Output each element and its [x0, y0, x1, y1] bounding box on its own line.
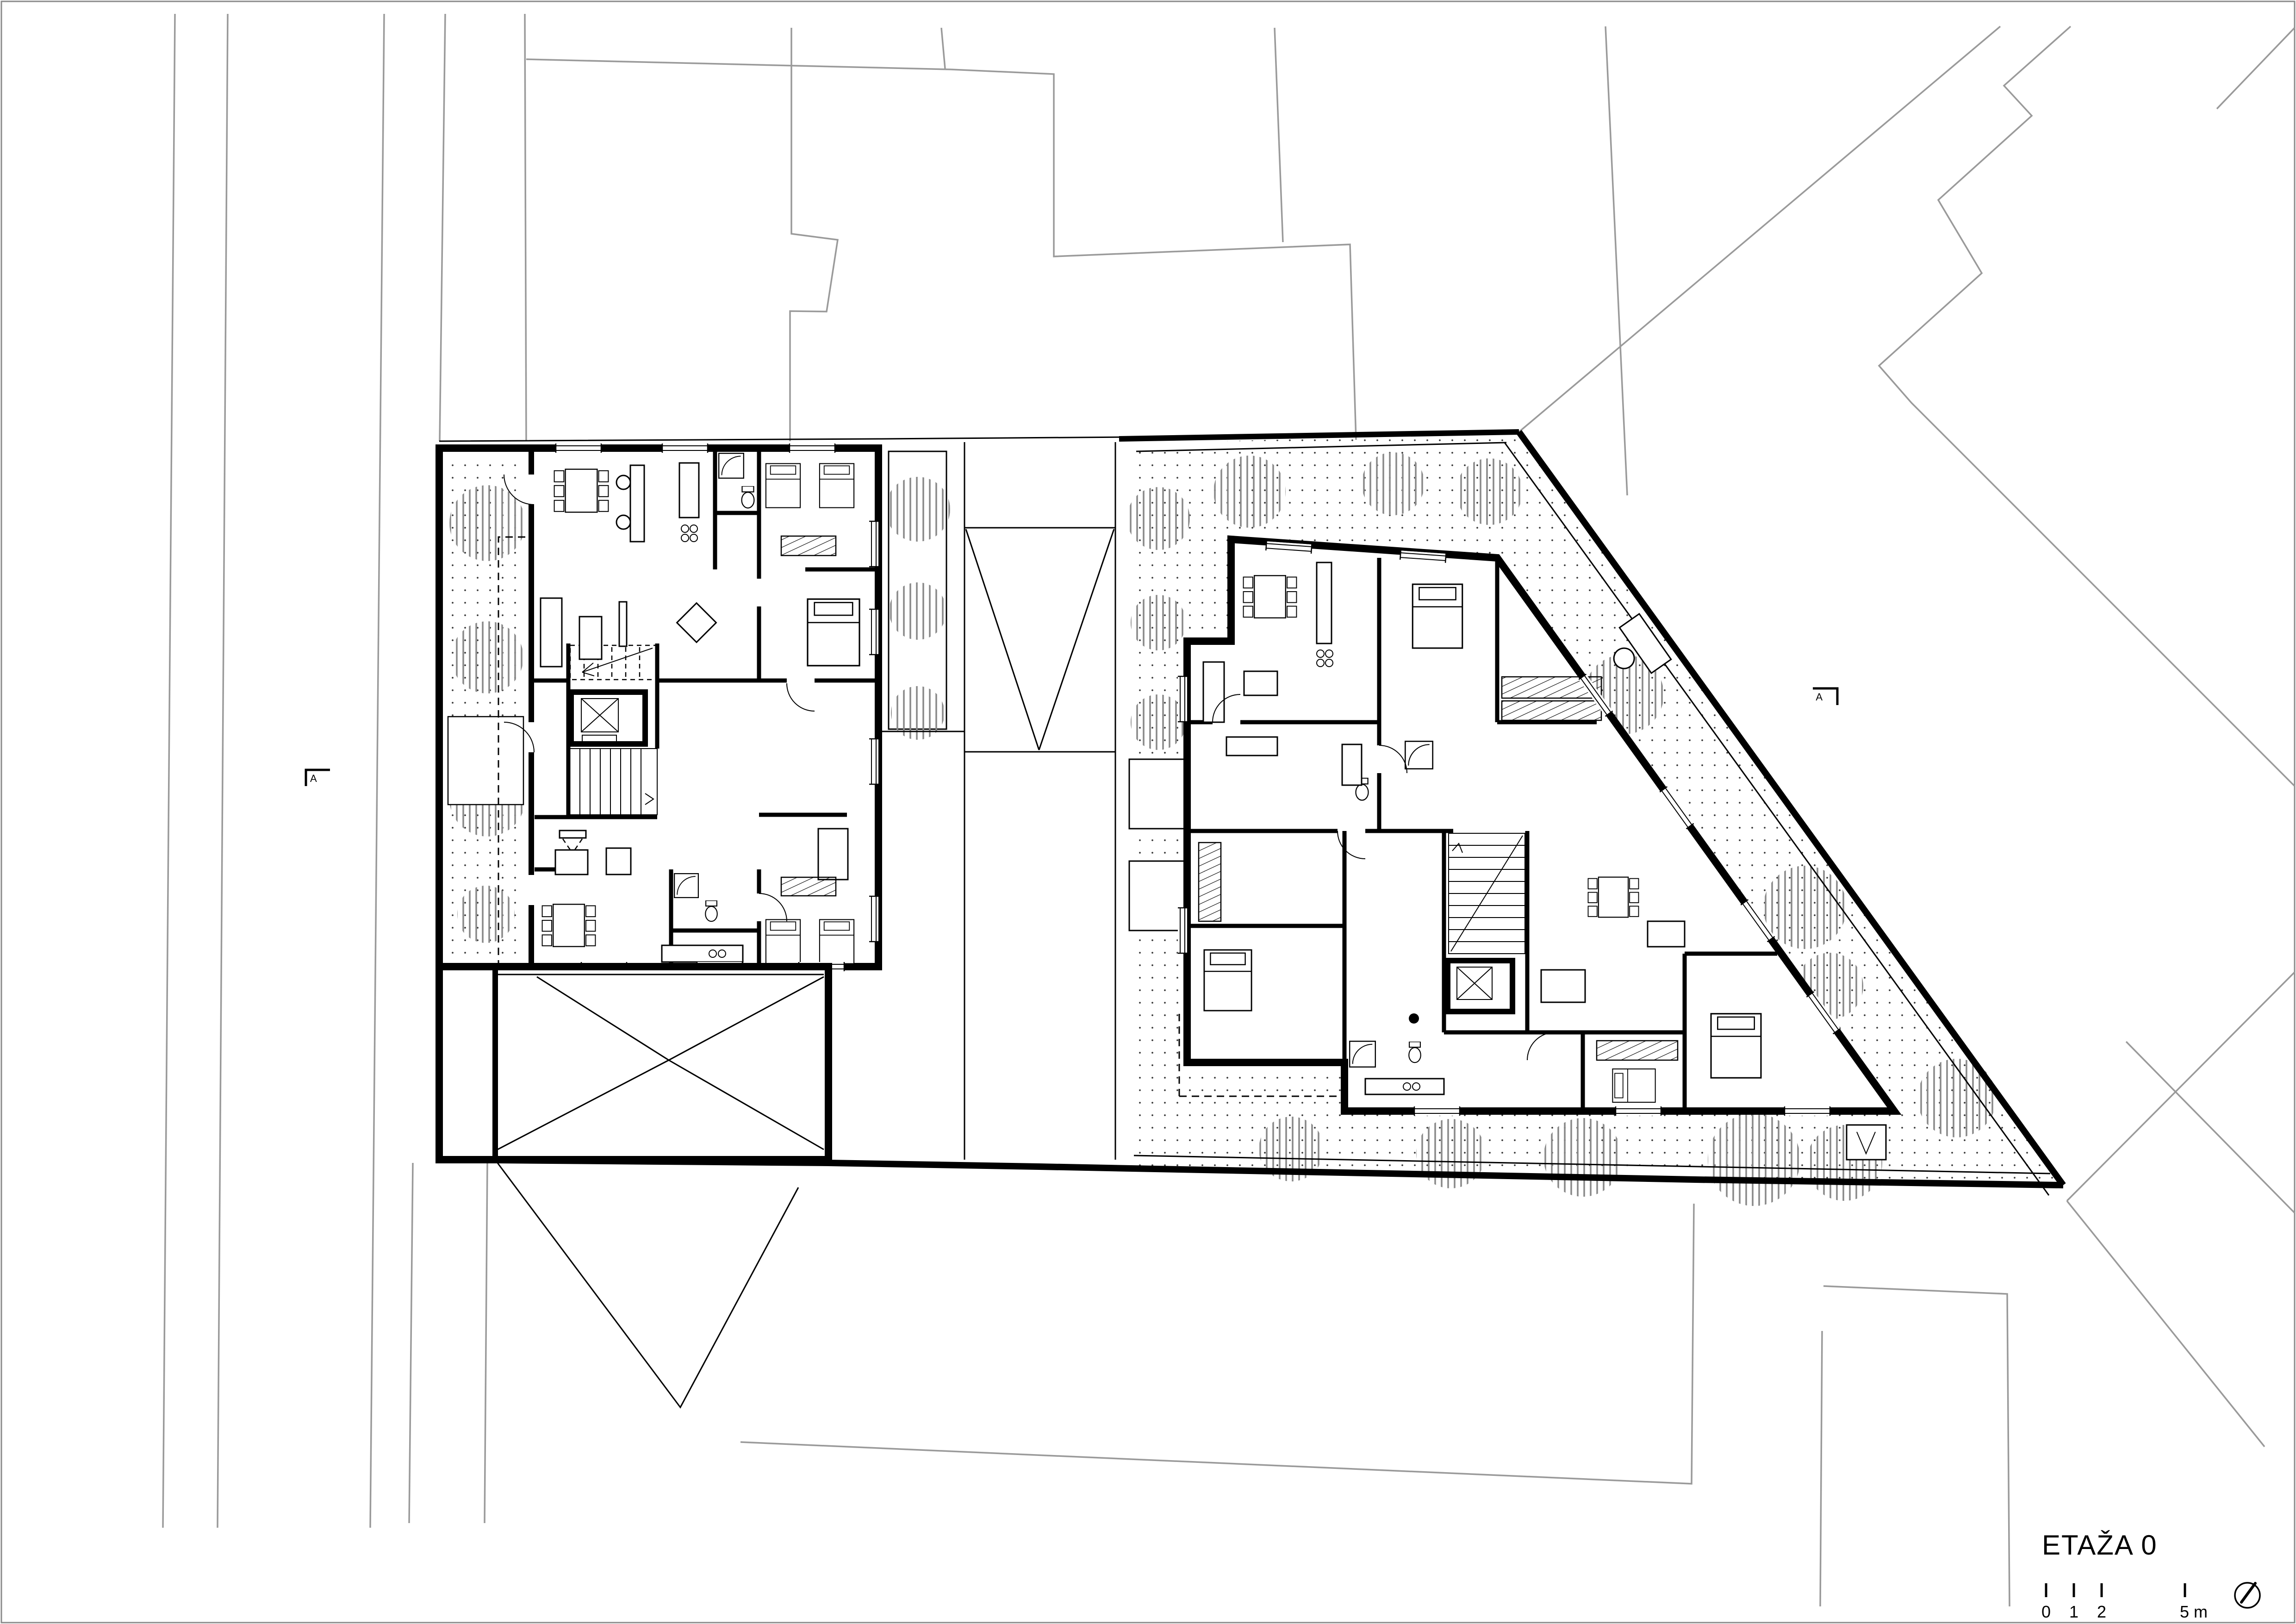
wardrobe [781, 536, 836, 556]
parcel-line [2217, 28, 2295, 109]
section-marker-label: A [1816, 691, 1823, 703]
north-arrow-icon [2235, 1583, 2260, 1608]
scale-bar-ticks [2046, 1583, 2185, 1597]
garage-wing [439, 967, 828, 1407]
parcel-line [1519, 26, 2000, 432]
terrace [1129, 861, 1186, 931]
parcel-line [1820, 1331, 1822, 1606]
ramp-line [1039, 529, 1114, 750]
tree [457, 886, 515, 943]
parcel-line [941, 28, 945, 69]
column [1409, 1013, 1419, 1024]
parcel-line [2067, 1201, 2265, 1447]
road-line [218, 14, 228, 1528]
parcel-line [1879, 26, 2295, 786]
parcel-line [1823, 1286, 2010, 1606]
parcel-line [1605, 26, 1627, 495]
garden-stair-box [1847, 1125, 1886, 1160]
section-marker-a-right: A [1813, 688, 1837, 705]
wardrobe [1597, 1041, 1678, 1060]
terrace [1129, 759, 1186, 829]
parcel-line [526, 59, 1356, 440]
parcel-line [1275, 28, 1283, 242]
ramp-approach-lines [498, 1163, 798, 1407]
parcel-line [790, 28, 838, 441]
title-block: ETAŽA 0 0 1 2 5 m [2041, 1530, 2260, 1621]
drawing-sheet: A A ETAŽA 0 0 1 2 5 m [0, 0, 2296, 1624]
floor-plan-drawing: A A ETAŽA 0 0 1 2 5 m [0, 0, 2296, 1624]
parcel-line [409, 1163, 413, 1523]
scale-tick-label: 0 [2041, 1602, 2051, 1621]
driveway [878, 442, 1115, 1160]
wardrobe [781, 877, 836, 896]
parcel-line [525, 14, 526, 441]
scale-tick-label: 1 [2069, 1602, 2078, 1621]
terrace [448, 717, 523, 805]
parcel-line [740, 1204, 1694, 1484]
scale-end-label: 5 m [2180, 1602, 2208, 1621]
parcel-line [440, 14, 445, 441]
parcel-line [2126, 1042, 2295, 1213]
section-marker-label: A [310, 773, 317, 784]
scale-bar: 0 1 2 5 m [2041, 1583, 2208, 1621]
ramp-line [966, 529, 1039, 750]
road-line [163, 14, 175, 1528]
wardrobe [1199, 843, 1221, 921]
wardrobe [1502, 701, 1601, 720]
parcel-line [485, 1163, 487, 1523]
parcel-line [2067, 972, 2295, 1201]
drawing-title: ETAŽA 0 [2042, 1530, 2158, 1561]
section-marker-a-left: A [306, 770, 330, 786]
road-line [370, 14, 384, 1528]
tree [451, 621, 523, 693]
scale-tick-label: 2 [2097, 1602, 2106, 1621]
